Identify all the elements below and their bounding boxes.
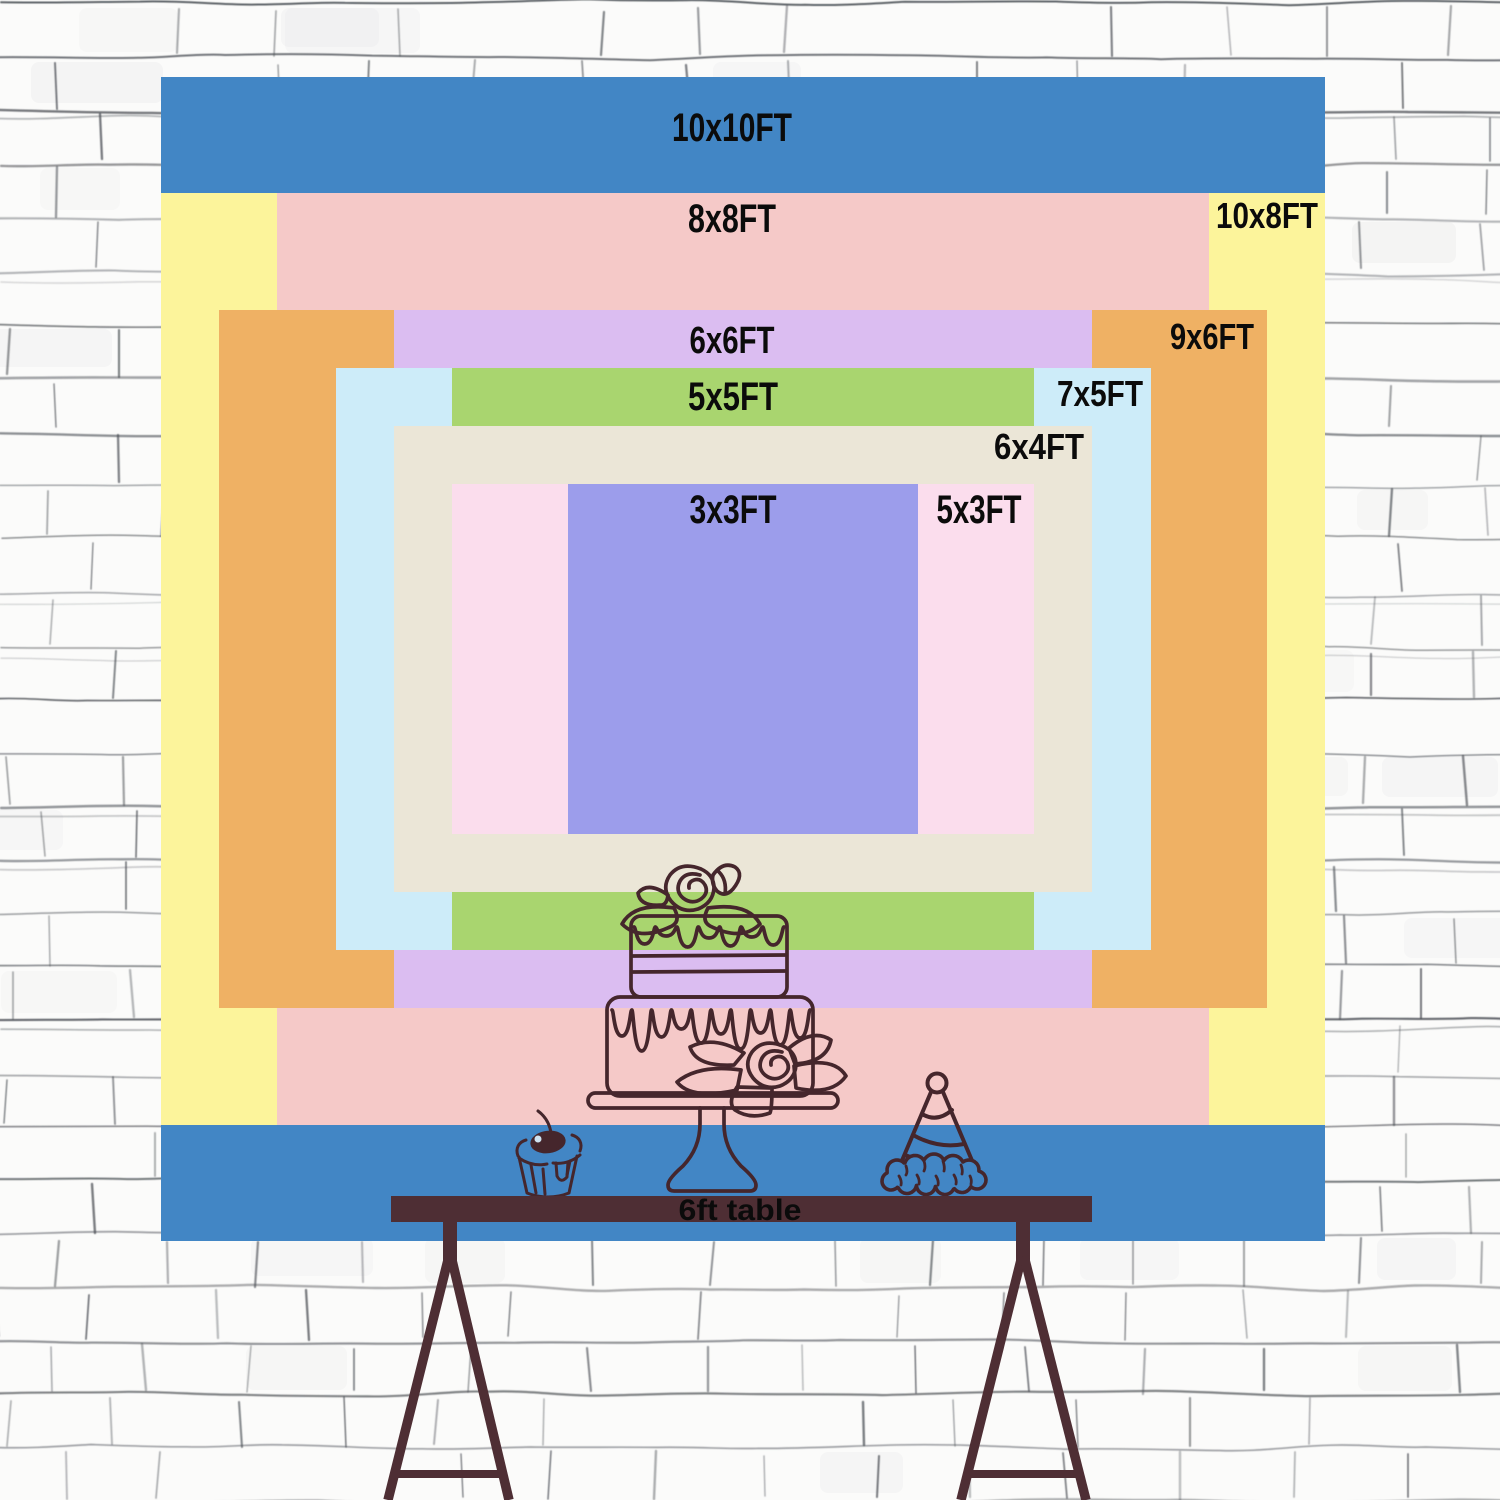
svg-text:10x8FT: 10x8FT <box>1216 195 1318 236</box>
svg-text:5x3FT: 5x3FT <box>937 488 1022 532</box>
svg-text:8x8FT: 8x8FT <box>688 197 776 241</box>
svg-text:3x3FT: 3x3FT <box>690 488 777 532</box>
svg-text:6ft table: 6ft table <box>679 1194 802 1227</box>
svg-text:6x4FT: 6x4FT <box>994 426 1084 467</box>
svg-text:9x6FT: 9x6FT <box>1170 316 1254 357</box>
svg-text:6x6FT: 6x6FT <box>690 320 775 362</box>
svg-text:7x5FT: 7x5FT <box>1057 373 1143 414</box>
svg-text:5x5FT: 5x5FT <box>688 375 778 419</box>
svg-text:10x10FT: 10x10FT <box>672 106 792 150</box>
